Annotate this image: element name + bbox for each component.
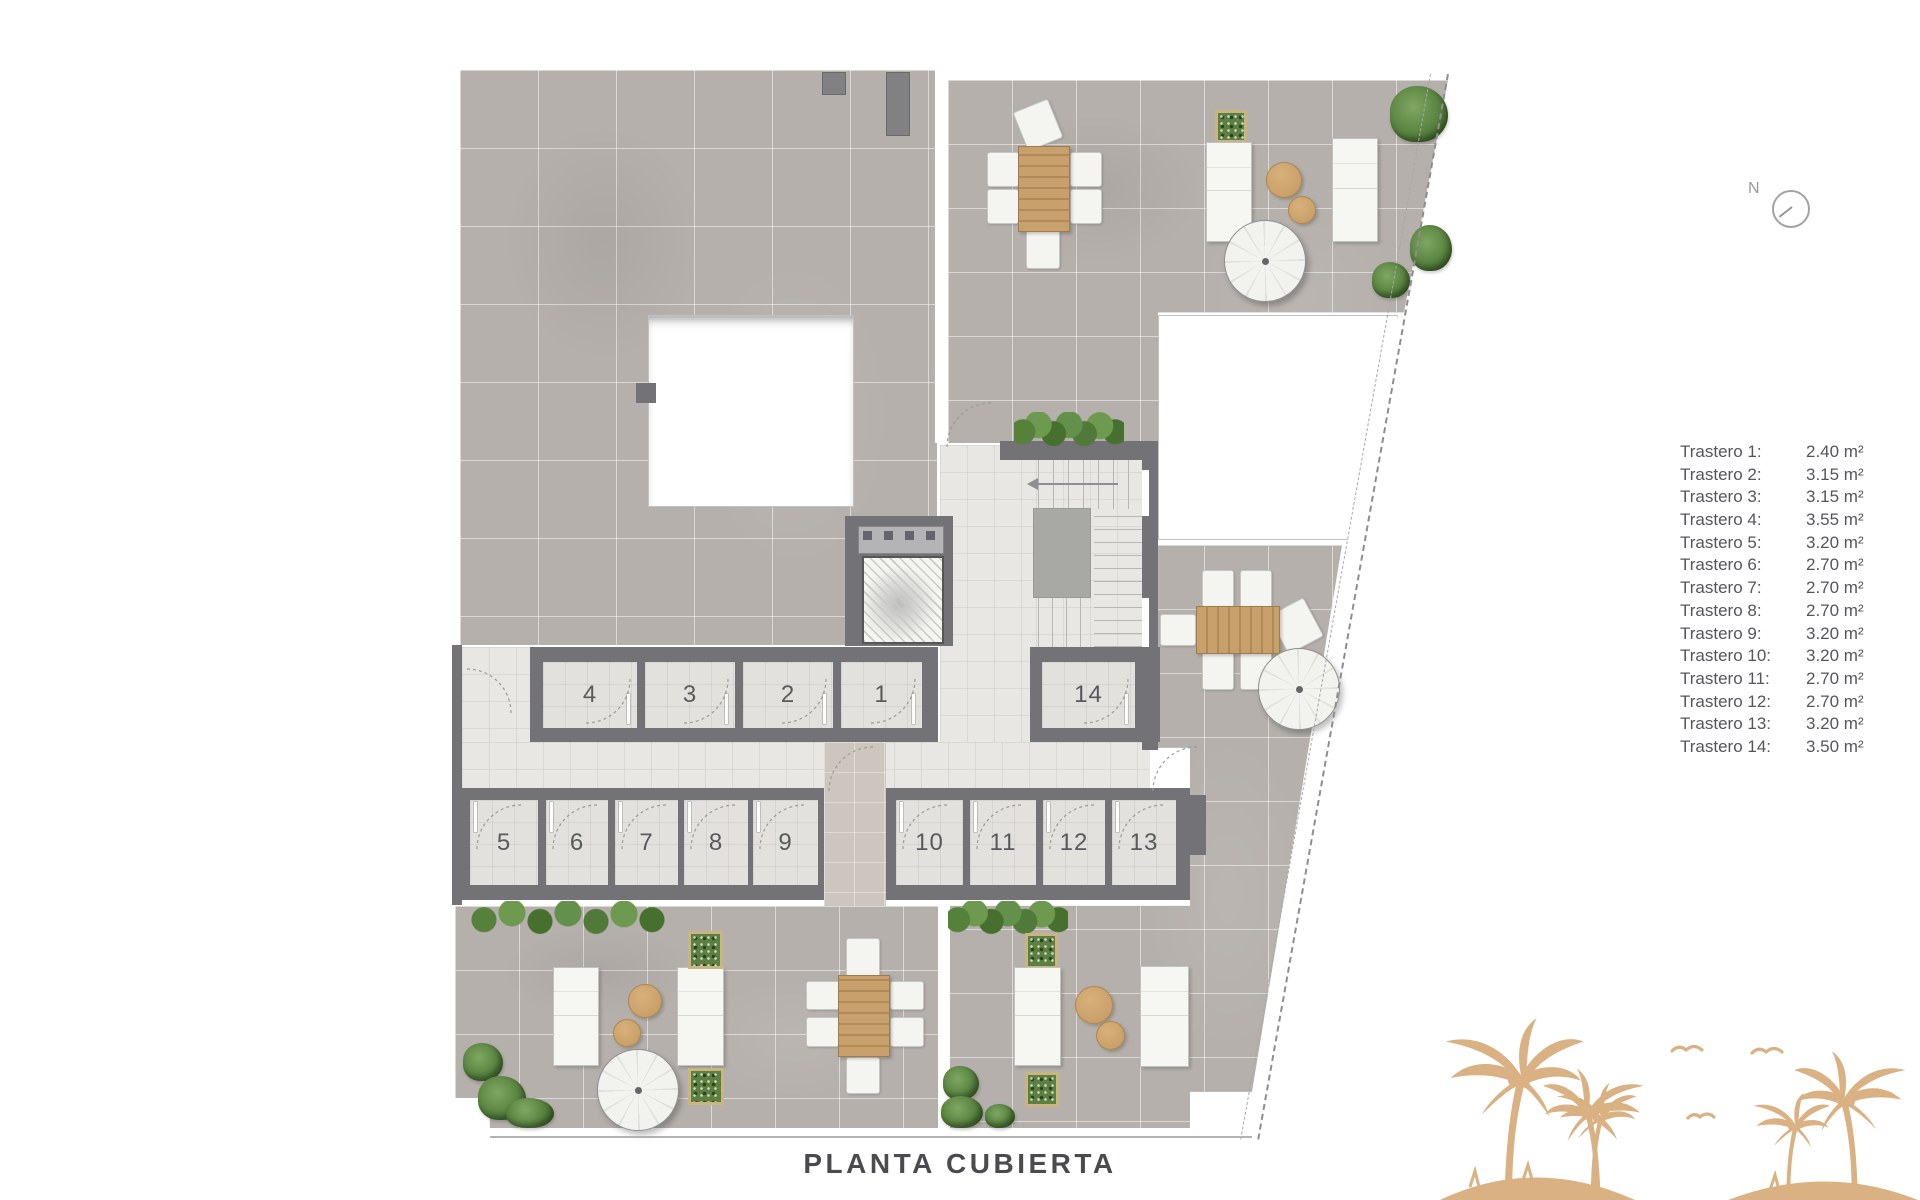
legend-row: Trastero 10:3.20 m²	[1680, 645, 1864, 668]
door-leaf	[1125, 694, 1128, 724]
storage-room: 14	[1042, 662, 1135, 728]
roof-chimney-tall	[886, 72, 910, 136]
entrance-door	[1152, 746, 1198, 792]
legend-room-area: 2.40 m²	[1806, 441, 1864, 464]
dining-chair	[1202, 570, 1234, 608]
legend-room-label: Trastero 1:	[1680, 441, 1806, 464]
core-planter-hedge	[1014, 412, 1124, 448]
parasol-umbrella	[597, 1049, 679, 1131]
room-number-label: 14	[1074, 681, 1103, 709]
legend-room-label: Trastero 7:	[1680, 577, 1806, 600]
storage-area-legend: Trastero 1:2.40 m²Trastero 2:3.15 m²Tras…	[1680, 441, 1864, 759]
legend-room-label: Trastero 4:	[1680, 509, 1806, 532]
stair-landing	[1034, 509, 1090, 597]
dining-chair	[890, 981, 924, 1010]
planter-box	[688, 1068, 724, 1105]
door-leaf	[1116, 802, 1119, 832]
dining-chair	[1070, 189, 1102, 224]
room-number-label: 5	[497, 829, 511, 857]
dining-table	[1196, 606, 1280, 654]
legend-row: Trastero 7:2.70 m²	[1680, 577, 1864, 600]
round-side-table	[1096, 1021, 1125, 1050]
legend-room-label: Trastero 11:	[1680, 668, 1806, 691]
storage-room: 12	[1043, 800, 1105, 885]
dining-chair	[806, 981, 840, 1010]
elevator-machinery	[858, 526, 944, 554]
storage-room: 9	[753, 800, 818, 885]
storage-room: 2	[743, 662, 833, 728]
legend-row: Trastero 3:3.15 m²	[1680, 486, 1864, 509]
legend-room-area: 2.70 m²	[1806, 600, 1864, 623]
room-number-label: 10	[915, 829, 944, 857]
sun-lounger	[553, 967, 599, 1066]
bush	[941, 1096, 983, 1128]
bush	[506, 1098, 554, 1128]
legend-room-area: 2.70 m²	[1806, 691, 1864, 714]
dining-chair	[1070, 152, 1102, 187]
round-side-table	[628, 984, 662, 1018]
room-number-label: 2	[781, 681, 795, 709]
dining-chair	[846, 938, 880, 977]
bush	[943, 1066, 979, 1100]
sun-lounger	[1140, 966, 1189, 1067]
elevator-car	[862, 556, 944, 644]
divider-strip-top	[935, 70, 948, 443]
skylight-hatch-handle	[636, 383, 656, 403]
legend-row: Trastero 12:2.70 m²	[1680, 691, 1864, 714]
plot-bottom-line	[490, 1136, 1252, 1138]
room-number-label: 8	[709, 829, 723, 857]
room-number-label: 12	[1060, 829, 1089, 857]
legend-row: Trastero 6:2.70 m²	[1680, 554, 1864, 577]
planter-box	[1215, 110, 1247, 143]
round-side-table	[1266, 162, 1302, 198]
room-number-label: 3	[683, 681, 697, 709]
legend-room-area: 2.70 m²	[1806, 668, 1864, 691]
palm-group	[1440, 1018, 1918, 1200]
legend-room-label: Trastero 3:	[1680, 486, 1806, 509]
legend-room-label: Trastero 10:	[1680, 645, 1806, 668]
door-swing-icon	[828, 746, 874, 792]
door-leaf	[900, 802, 903, 832]
legend-room-area: 3.15 m²	[1806, 464, 1864, 487]
skylight-void	[648, 315, 854, 507]
storage-room: 10	[896, 800, 963, 885]
bush	[985, 1104, 1015, 1128]
legend-room-area: 2.70 m²	[1806, 554, 1864, 577]
parasol-umbrella	[1258, 648, 1340, 730]
dining-chair	[846, 1057, 880, 1094]
entrance-door	[946, 402, 992, 448]
sun-lounger	[677, 967, 724, 1066]
entrance-door	[828, 746, 874, 792]
legend-room-area: 3.20 m²	[1806, 645, 1864, 668]
room-number-label: 1	[874, 681, 888, 709]
door-leaf	[688, 802, 691, 832]
door-leaf	[974, 802, 977, 832]
legend-room-label: Trastero 8:	[1680, 600, 1806, 623]
legend-row: Trastero 2:3.15 m²	[1680, 464, 1864, 487]
room-number-label: 13	[1130, 829, 1159, 857]
legend-room-label: Trastero 5:	[1680, 532, 1806, 555]
stair-flight-bottom	[1038, 598, 1094, 647]
storage-room: 13	[1112, 800, 1176, 885]
compass-north-label: N	[1748, 180, 1760, 198]
floor-plan-page: 4321145678910111213	[0, 0, 1920, 1200]
legend-room-area: 3.15 m²	[1806, 486, 1864, 509]
dining-chair	[1160, 614, 1196, 646]
core-window-slot-1	[1142, 470, 1149, 516]
planter-box	[1025, 933, 1058, 969]
dining-table	[1018, 146, 1070, 232]
compass-needle	[1779, 206, 1793, 217]
legend-row: Trastero 9:3.20 m²	[1680, 623, 1864, 646]
hedge-bottom-center	[948, 901, 1068, 935]
door-leaf	[619, 802, 622, 832]
legend-row: Trastero 8:2.70 m²	[1680, 600, 1864, 623]
sun-lounger	[1014, 967, 1061, 1066]
legend-row: Trastero 4:3.55 m²	[1680, 509, 1864, 532]
sun-lounger	[1332, 138, 1378, 242]
room-number-label: 9	[778, 829, 792, 857]
stair-direction-arrow-icon	[1027, 478, 1038, 490]
legend-room-label: Trastero 13:	[1680, 713, 1806, 736]
storage-room: 6	[546, 800, 608, 885]
legend-room-label: Trastero 12:	[1680, 691, 1806, 714]
door-leaf	[474, 802, 477, 832]
legend-row: Trastero 5:3.20 m²	[1680, 532, 1864, 555]
legend-room-label: Trastero 6:	[1680, 554, 1806, 577]
storage-room: 1	[841, 662, 922, 728]
hall-floor	[940, 445, 1036, 745]
door-swing-icon	[946, 402, 992, 448]
door-leaf	[550, 802, 553, 832]
legend-room-label: Trastero 9:	[1680, 623, 1806, 646]
door-leaf	[1047, 802, 1050, 832]
door-leaf	[725, 694, 728, 724]
hedge-bottom-left	[468, 901, 668, 935]
palm-trees-decoration	[1430, 985, 1920, 1200]
legend-row: Trastero 11:2.70 m²	[1680, 668, 1864, 691]
door-leaf	[627, 694, 630, 724]
legend-room-area: 2.70 m²	[1806, 577, 1864, 600]
dining-chair	[890, 1017, 924, 1047]
round-side-table	[1288, 196, 1316, 224]
legend-room-area: 3.20 m²	[1806, 623, 1864, 646]
dining-table	[838, 975, 890, 1057]
parasol-umbrella	[1224, 220, 1306, 302]
legend-row: Trastero 1:2.40 m²	[1680, 441, 1864, 464]
stair-direction-line	[1038, 483, 1118, 485]
room-number-label: 6	[570, 829, 584, 857]
legend-row: Trastero 14:3.50 m²	[1680, 736, 1864, 759]
legend-room-area: 3.20 m²	[1806, 532, 1864, 555]
storage-room: 4	[543, 662, 637, 728]
legend-room-label: Trastero 14:	[1680, 736, 1806, 759]
storage-room: 5	[470, 800, 538, 885]
round-side-table	[613, 1019, 641, 1047]
legend-room-area: 3.55 m²	[1806, 509, 1864, 532]
storage-block-notch	[1176, 795, 1206, 855]
legend-room-area: 3.20 m²	[1806, 713, 1864, 736]
dining-chair	[987, 189, 1019, 224]
round-side-table	[1075, 986, 1113, 1024]
core-window-slot-2	[1142, 598, 1149, 648]
legend-room-label: Trastero 2:	[1680, 464, 1806, 487]
door-leaf	[912, 694, 915, 724]
planter-box	[1025, 1072, 1059, 1107]
door-leaf	[757, 802, 760, 832]
legend-room-area: 3.50 m²	[1806, 736, 1864, 759]
open-void-right	[1158, 315, 1398, 540]
room-number-label: 7	[639, 829, 653, 857]
room-number-label: 4	[583, 681, 597, 709]
planter-box	[688, 931, 723, 969]
dining-chair	[1240, 570, 1272, 608]
door-leaf	[823, 694, 826, 724]
storage-room: 8	[684, 800, 748, 885]
corridor-floor	[462, 742, 1150, 792]
storage-room: 3	[645, 662, 735, 728]
left-exterior-wall	[452, 645, 462, 905]
storage-room: 7	[615, 800, 678, 885]
dining-chair	[1202, 652, 1234, 690]
legend-row: Trastero 13:3.20 m²	[1680, 713, 1864, 736]
dining-chair	[987, 152, 1019, 187]
door-swing-icon	[466, 668, 512, 714]
stair-flight-right	[1094, 509, 1142, 647]
room-number-label: 11	[990, 829, 1017, 857]
door-swing-icon	[1152, 746, 1198, 792]
entrance-door	[466, 668, 512, 714]
compass-icon	[1772, 190, 1810, 228]
dining-chair	[806, 1017, 840, 1047]
roof-chimney-small	[822, 72, 846, 95]
storage-room: 11	[970, 800, 1036, 885]
dining-chair	[1026, 229, 1060, 269]
